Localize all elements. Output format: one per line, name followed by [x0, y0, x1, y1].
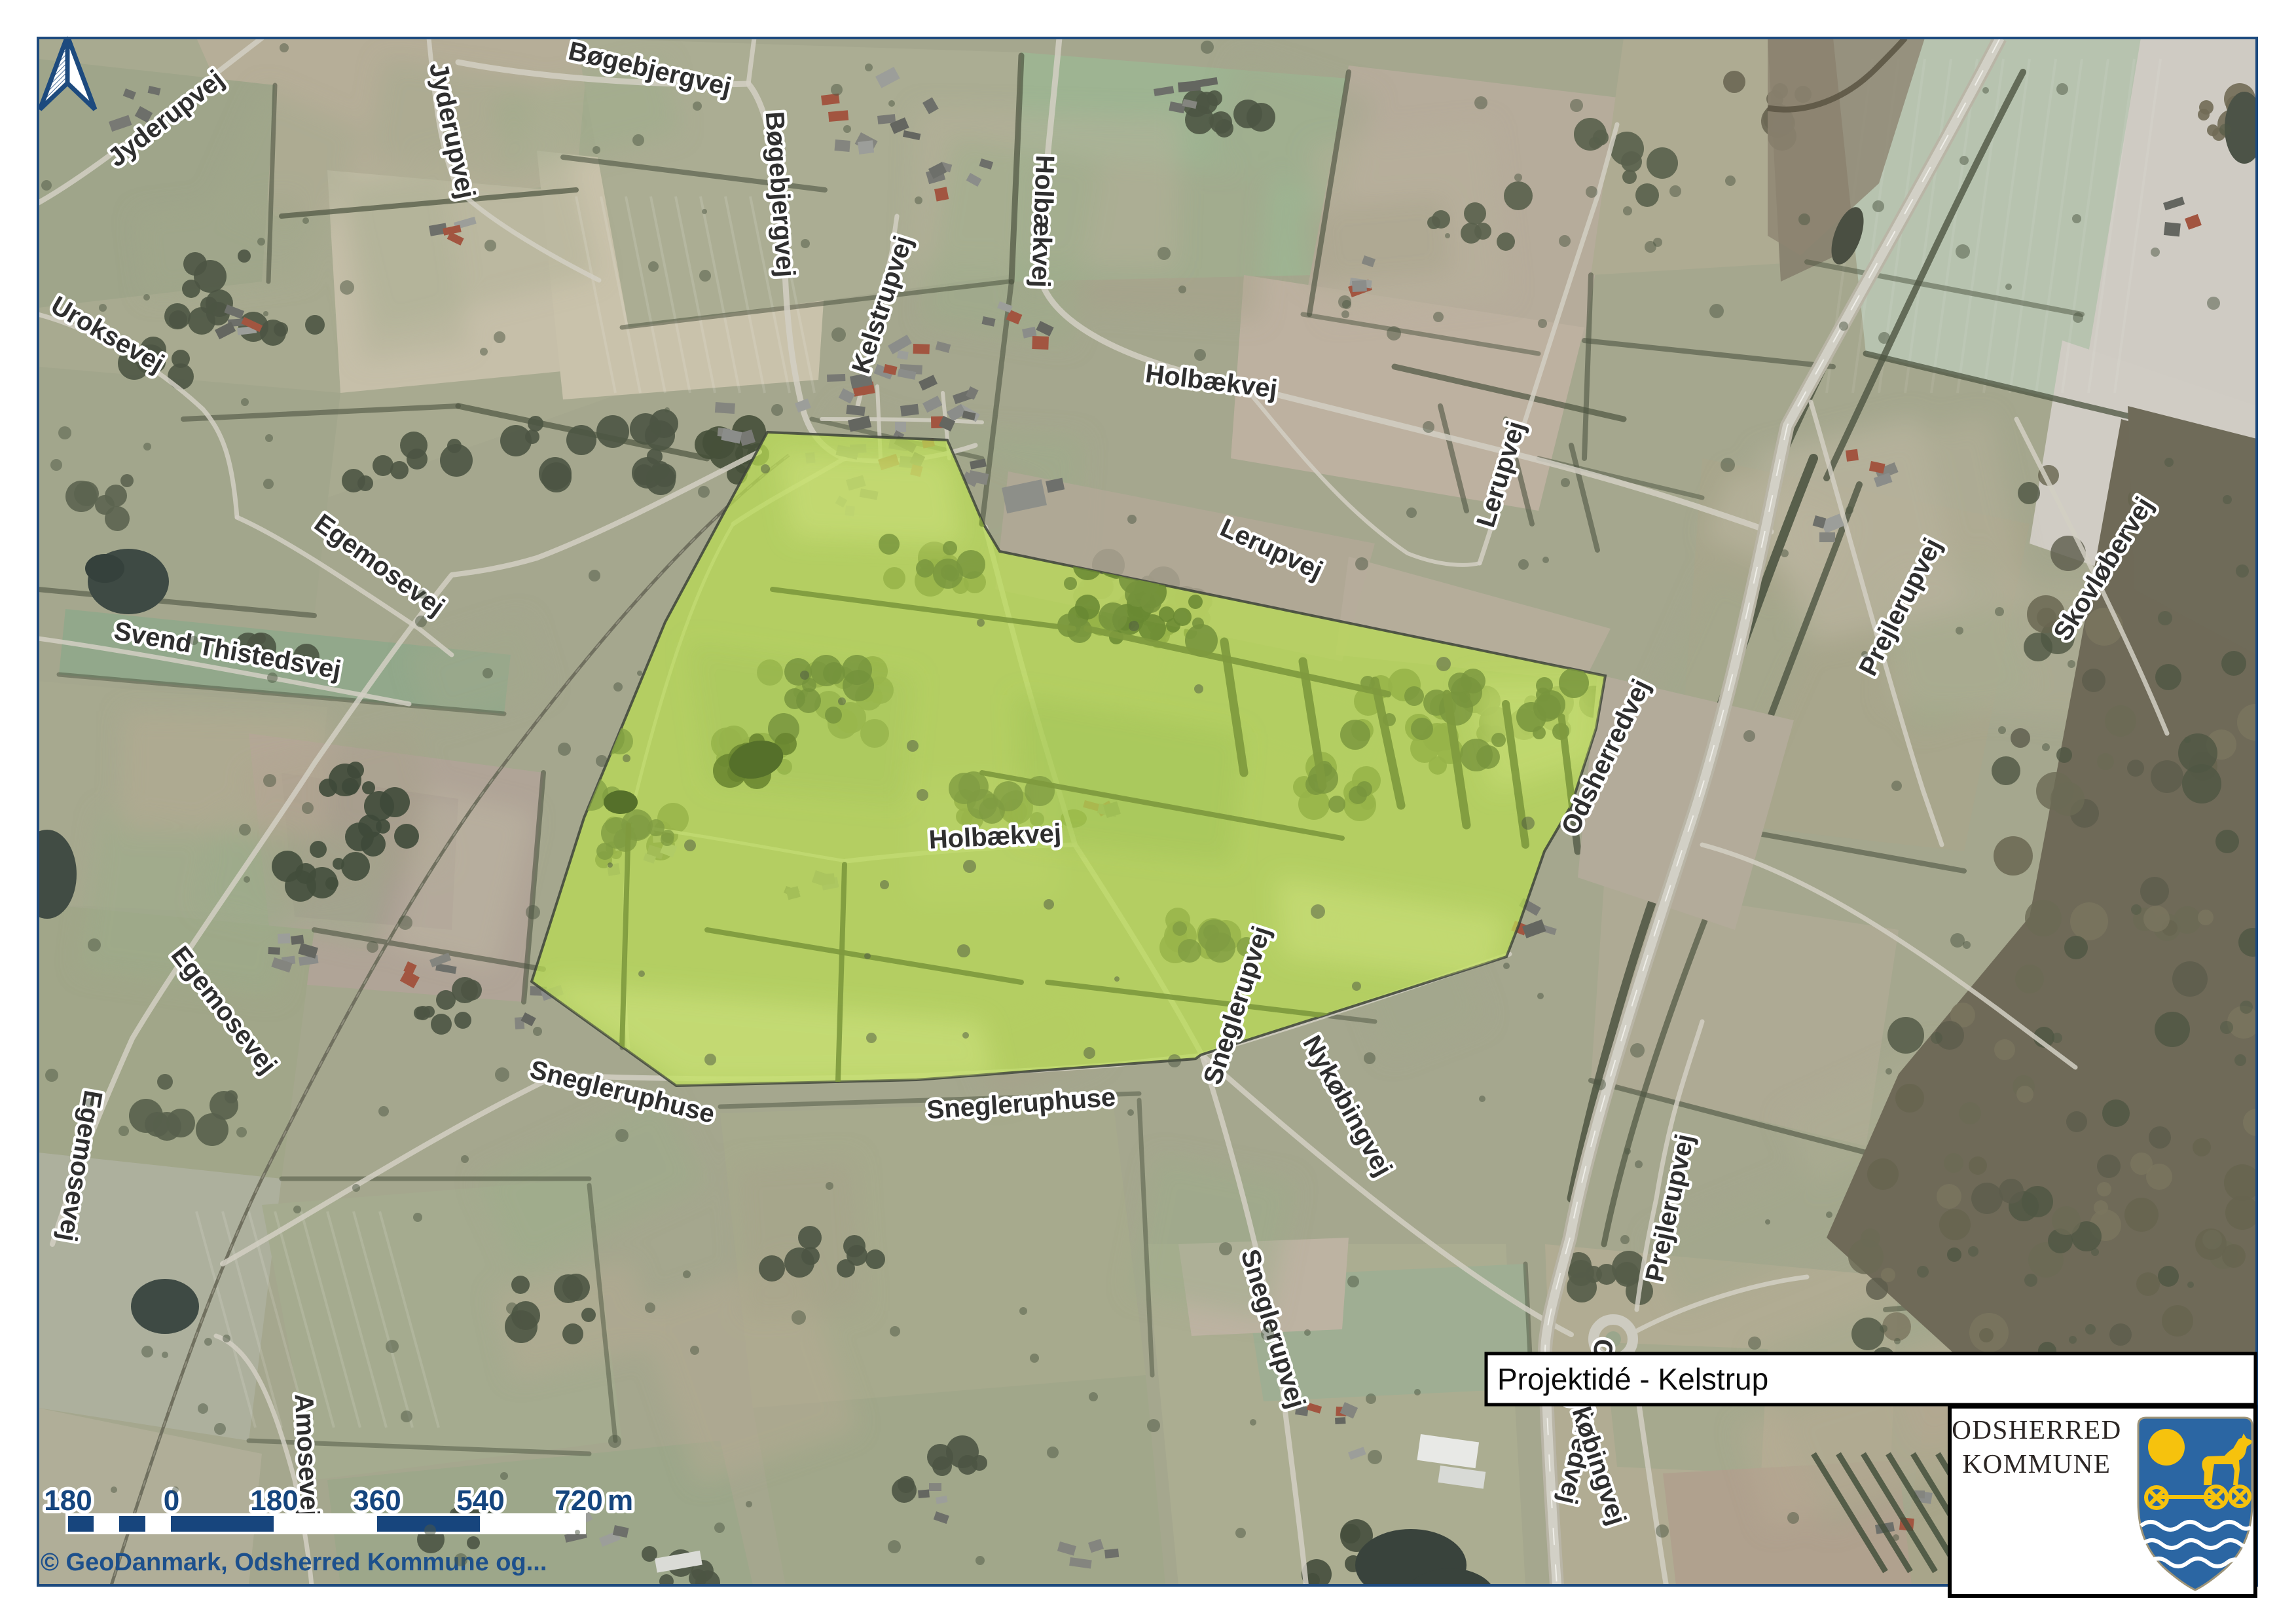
svg-text:KOMMUNE: KOMMUNE	[1963, 1449, 2111, 1479]
svg-text:180: 180	[250, 1485, 298, 1517]
svg-text:720: 720	[555, 1485, 602, 1517]
svg-text:© GeoDanmark, Odsherred Kommun: © GeoDanmark, Odsherred Kommune og...	[41, 1549, 547, 1576]
svg-text:180: 180	[44, 1485, 92, 1517]
svg-text:540: 540	[456, 1485, 504, 1517]
svg-text:Holbækvej: Holbækvej	[1026, 155, 1059, 288]
svg-text:360: 360	[353, 1485, 401, 1517]
svg-text:m: m	[608, 1485, 633, 1517]
svg-text:ODSHERRED: ODSHERRED	[1952, 1414, 2122, 1445]
svg-text:Projektidé - Kelstrup: Projektidé - Kelstrup	[1497, 1362, 1768, 1396]
